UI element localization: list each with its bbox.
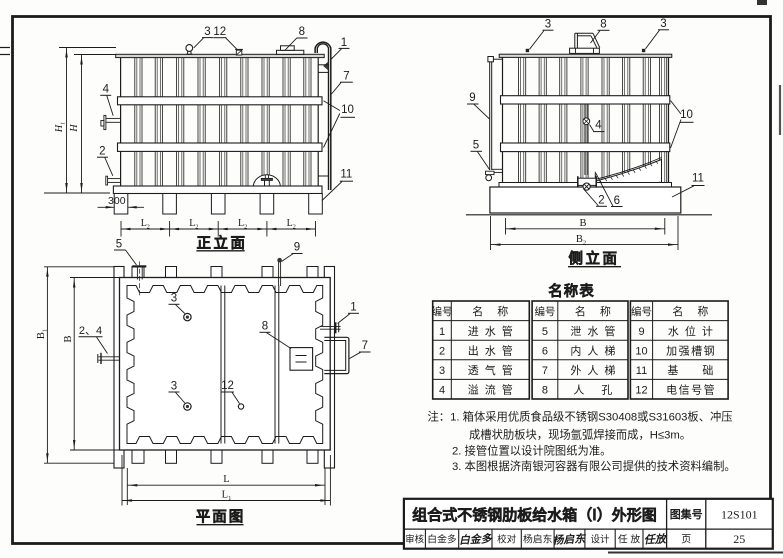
svg-text:9: 9	[638, 326, 644, 338]
svg-text:8: 8	[542, 385, 548, 397]
svg-text:外人梯: 外人梯	[570, 364, 621, 377]
svg-text:成槽状肋板块，现场氩弧焊接而成，H≤3m。: 成槽状肋板块，现场氩弧焊接而成，H≤3m。	[469, 428, 691, 442]
svg-text:300: 300	[108, 195, 126, 207]
svg-text:B: B	[63, 335, 74, 342]
svg-text:泄水管: 泄水管	[570, 324, 621, 338]
svg-text:人孔: 人孔	[573, 384, 629, 397]
svg-text:审核: 审核	[405, 534, 425, 546]
svg-text:3: 3	[439, 365, 445, 377]
svg-text:7: 7	[343, 71, 349, 83]
svg-text:编号: 编号	[534, 305, 555, 318]
svg-text:L: L	[223, 474, 229, 485]
svg-text:名称: 名称	[672, 304, 722, 318]
svg-text:侧立面: 侧立面	[569, 250, 620, 268]
svg-text:6: 6	[542, 345, 548, 357]
svg-text:12: 12	[221, 380, 234, 392]
svg-text:3. 本图根据济南银河容器有限公司提供的技术资料编制。: 3. 本图根据济南银河容器有限公司提供的技术资料编制。	[452, 459, 736, 473]
svg-text:10: 10	[341, 104, 354, 116]
svg-text:正立面: 正立面	[197, 234, 248, 252]
svg-text:名称表: 名称表	[548, 282, 595, 300]
svg-text:溢流管: 溢流管	[468, 383, 519, 397]
svg-text:2: 2	[439, 345, 445, 357]
svg-text:3: 3	[204, 26, 210, 38]
svg-text:5: 5	[473, 140, 479, 152]
svg-text:2. 接管位置以设计院图纸为准。: 2. 接管位置以设计院图纸为准。	[452, 444, 611, 458]
svg-text:加强槽钢: 加强槽钢	[666, 344, 716, 357]
svg-text:8: 8	[299, 26, 305, 38]
svg-text:5: 5	[542, 326, 548, 338]
svg-text:1: 1	[341, 37, 347, 49]
svg-text:5: 5	[116, 239, 122, 251]
svg-text:H: H	[69, 124, 80, 133]
svg-text:任 放: 任 放	[618, 533, 641, 546]
svg-text:杨启东: 杨启东	[523, 533, 553, 546]
svg-text:B: B	[579, 218, 586, 229]
svg-text:组合式不锈钢肋板给水箱（Ⅰ）外形图: 组合式不锈钢肋板给水箱（Ⅰ）外形图	[412, 506, 656, 524]
svg-text:图集号: 图集号	[670, 507, 703, 521]
svg-text:任放: 任放	[643, 532, 668, 546]
svg-text:名称: 名称	[575, 304, 625, 318]
svg-text:名称: 名称	[472, 304, 522, 318]
svg-text:出水管: 出水管	[468, 343, 519, 357]
svg-text:12S101: 12S101	[721, 508, 758, 522]
svg-text:11: 11	[340, 169, 352, 181]
svg-text:7: 7	[542, 365, 548, 377]
svg-text:9: 9	[469, 92, 475, 104]
svg-text:9: 9	[294, 242, 300, 254]
svg-text:注：1. 箱体采用优质食品级不锈钢S30408或S31603: 注：1. 箱体采用优质食品级不锈钢S30408或S31603板、冲压	[428, 410, 733, 424]
svg-text:编号: 编号	[631, 305, 652, 318]
svg-text:基础: 基础	[667, 364, 737, 377]
svg-text:12: 12	[213, 26, 226, 38]
svg-text:3: 3	[171, 293, 177, 305]
svg-text:10: 10	[680, 109, 693, 121]
svg-text:8: 8	[600, 19, 606, 31]
svg-text:3: 3	[660, 18, 666, 30]
svg-text:11: 11	[636, 365, 647, 377]
svg-text:编号: 编号	[432, 305, 453, 318]
svg-text:透气管: 透气管	[468, 363, 519, 377]
svg-text:白金多: 白金多	[427, 533, 457, 546]
svg-text:2: 2	[99, 146, 105, 158]
svg-text:4: 4	[595, 120, 602, 132]
svg-text:白金多: 白金多	[459, 532, 493, 547]
svg-text:7: 7	[362, 340, 368, 352]
svg-text:设计: 设计	[590, 534, 610, 546]
svg-text:4: 4	[439, 385, 445, 397]
svg-text:杨启东: 杨启东	[552, 532, 587, 547]
svg-text:1: 1	[350, 302, 356, 314]
svg-text:25: 25	[733, 532, 745, 546]
svg-text:内人梯: 内人梯	[570, 343, 621, 357]
svg-text:8: 8	[262, 321, 268, 333]
svg-text:校对: 校对	[497, 534, 517, 546]
svg-text:4: 4	[103, 84, 110, 96]
svg-text:进水管: 进水管	[468, 324, 519, 338]
svg-text:1: 1	[439, 326, 445, 338]
svg-text:3: 3	[545, 19, 551, 31]
svg-text:2: 2	[598, 195, 604, 207]
svg-text:12: 12	[635, 385, 647, 397]
svg-text:3: 3	[171, 380, 177, 392]
svg-text:电信号管: 电信号管	[666, 383, 716, 397]
svg-text:10: 10	[635, 345, 647, 357]
svg-text:11: 11	[692, 173, 704, 185]
svg-text:平面图: 平面图	[196, 509, 246, 526]
svg-text:6: 6	[614, 195, 620, 207]
svg-text:2、4: 2、4	[79, 325, 102, 337]
svg-text:水位计: 水位计	[668, 324, 719, 338]
svg-text:页: 页	[681, 534, 691, 546]
